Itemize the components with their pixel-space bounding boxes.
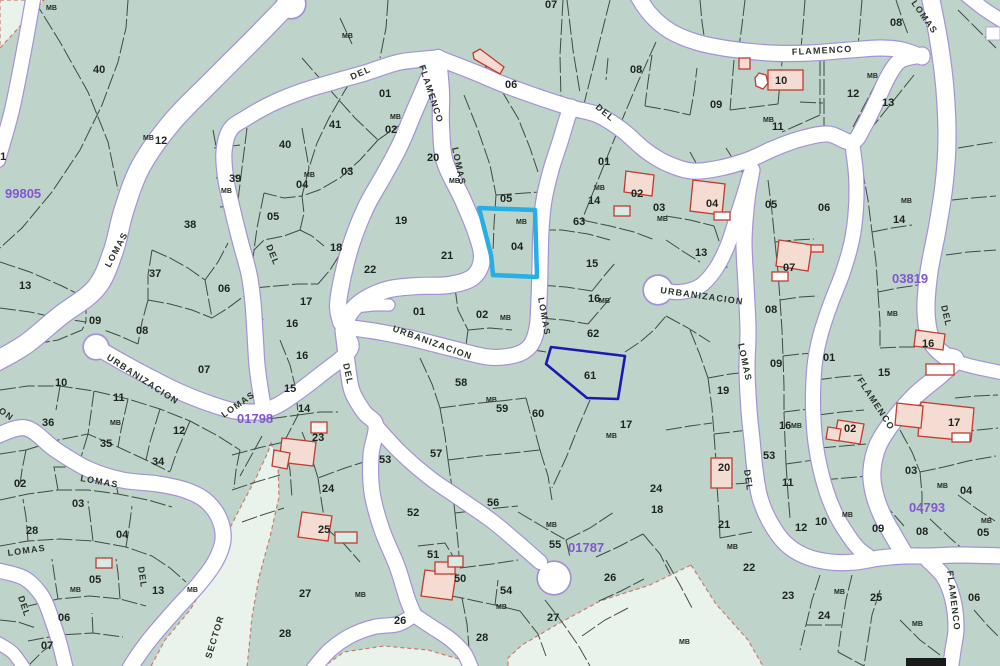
- svg-text:27: 27: [547, 612, 559, 624]
- svg-text:06: 06: [218, 283, 230, 295]
- svg-text:13: 13: [695, 247, 707, 259]
- svg-text:MB: MB: [867, 73, 878, 80]
- svg-text:22: 22: [364, 264, 376, 276]
- svg-text:04: 04: [116, 529, 129, 541]
- svg-text:MB: MB: [606, 433, 617, 440]
- svg-text:40: 40: [93, 64, 105, 76]
- svg-text:19: 19: [395, 215, 407, 227]
- svg-text:MB: MB: [516, 219, 527, 226]
- svg-text:41: 41: [329, 119, 341, 131]
- svg-text:05: 05: [89, 574, 101, 586]
- svg-text:21: 21: [441, 250, 453, 262]
- svg-text:35: 35: [100, 438, 112, 450]
- svg-text:28: 28: [26, 525, 38, 537]
- svg-text:16: 16: [286, 318, 298, 330]
- svg-text:01787: 01787: [568, 540, 604, 555]
- svg-text:51: 51: [427, 549, 439, 561]
- svg-text:08: 08: [890, 17, 902, 29]
- svg-text:03: 03: [653, 202, 665, 214]
- svg-text:36: 36: [42, 417, 54, 429]
- svg-text:12: 12: [155, 135, 167, 147]
- svg-text:MB: MB: [500, 315, 511, 322]
- svg-text:MB: MB: [763, 117, 774, 124]
- svg-text:40: 40: [279, 139, 291, 151]
- svg-text:10: 10: [775, 75, 787, 87]
- svg-text:16: 16: [922, 338, 934, 350]
- svg-text:10: 10: [55, 377, 67, 389]
- svg-text:12: 12: [173, 425, 185, 437]
- svg-text:08: 08: [765, 304, 777, 316]
- svg-text:02: 02: [476, 309, 488, 321]
- svg-text:12: 12: [795, 522, 807, 534]
- svg-text:MB: MB: [981, 518, 992, 525]
- svg-text:19: 19: [717, 385, 729, 397]
- svg-text:14: 14: [298, 403, 311, 415]
- svg-text:09: 09: [770, 358, 782, 370]
- svg-text:08: 08: [630, 64, 642, 76]
- svg-text:MB: MB: [727, 544, 738, 551]
- svg-text:17: 17: [300, 296, 312, 308]
- svg-text:04: 04: [706, 198, 719, 210]
- svg-text:59: 59: [496, 403, 508, 415]
- svg-text:12: 12: [847, 88, 859, 100]
- svg-text:38: 38: [184, 219, 196, 231]
- svg-text:MB: MB: [70, 587, 81, 594]
- svg-text:03: 03: [905, 465, 917, 477]
- svg-text:99805: 99805: [5, 186, 41, 201]
- svg-text:20: 20: [427, 152, 439, 164]
- svg-text:MB: MB: [110, 420, 121, 427]
- svg-text:02: 02: [385, 124, 397, 136]
- svg-text:05: 05: [267, 211, 279, 223]
- svg-text:09: 09: [710, 99, 722, 111]
- svg-text:15: 15: [284, 383, 296, 395]
- svg-text:MB: MB: [143, 135, 154, 142]
- svg-text:54: 54: [500, 585, 513, 597]
- svg-text:02: 02: [631, 188, 643, 200]
- svg-text:MB: MB: [901, 198, 912, 205]
- svg-text:24: 24: [650, 483, 663, 495]
- svg-text:05: 05: [500, 193, 512, 205]
- svg-text:56: 56: [487, 497, 499, 509]
- svg-text:63: 63: [573, 216, 585, 228]
- svg-text:MB: MB: [657, 216, 668, 223]
- svg-text:11: 11: [113, 392, 125, 404]
- svg-text:MB: MB: [221, 188, 232, 195]
- svg-text:09: 09: [872, 523, 884, 535]
- svg-text:39: 39: [229, 173, 241, 185]
- svg-text:28: 28: [279, 628, 291, 640]
- svg-text:04: 04: [511, 241, 524, 253]
- svg-text:MB: MB: [486, 397, 497, 404]
- svg-text:07: 07: [41, 640, 53, 652]
- svg-text:01: 01: [598, 156, 610, 168]
- svg-text:MB: MB: [679, 639, 690, 646]
- svg-text:61: 61: [584, 370, 596, 382]
- svg-text:01: 01: [413, 306, 425, 318]
- svg-text:MB: MB: [304, 172, 315, 179]
- svg-text:09: 09: [89, 315, 101, 327]
- svg-text:MB: MB: [791, 423, 802, 430]
- svg-text:24: 24: [818, 610, 831, 622]
- svg-text:26: 26: [604, 572, 616, 584]
- svg-text:01: 01: [823, 352, 835, 364]
- svg-text:02: 02: [844, 423, 856, 435]
- svg-text:06: 06: [968, 592, 980, 604]
- svg-text:60: 60: [532, 408, 544, 420]
- svg-text:53: 53: [763, 450, 775, 462]
- svg-text:07: 07: [783, 262, 795, 274]
- svg-text:04: 04: [296, 179, 309, 191]
- svg-text:03819: 03819: [892, 271, 928, 286]
- svg-text:23: 23: [312, 432, 324, 444]
- svg-text:17: 17: [948, 417, 960, 429]
- svg-text:18: 18: [330, 242, 342, 254]
- svg-text:02: 02: [14, 478, 26, 490]
- svg-text:04: 04: [960, 485, 973, 497]
- svg-text:06: 06: [58, 612, 70, 624]
- svg-text:08: 08: [136, 325, 148, 337]
- svg-text:23: 23: [782, 590, 794, 602]
- svg-text:62: 62: [587, 328, 599, 340]
- svg-text:MB: MB: [937, 483, 948, 490]
- svg-text:06: 06: [818, 202, 830, 214]
- svg-text:MB: MB: [342, 33, 353, 40]
- svg-text:21: 21: [718, 519, 730, 531]
- svg-text:13: 13: [19, 280, 31, 292]
- svg-text:37: 37: [149, 268, 161, 280]
- svg-text:16: 16: [296, 350, 308, 362]
- svg-text:53: 53: [379, 454, 391, 466]
- svg-text:07: 07: [198, 364, 210, 376]
- svg-text:25: 25: [870, 592, 882, 604]
- svg-text:05: 05: [765, 199, 777, 211]
- svg-text:MB: MB: [355, 592, 366, 599]
- svg-text:MB: MB: [842, 512, 853, 519]
- svg-text:15: 15: [586, 258, 598, 270]
- svg-text:MB: MB: [187, 587, 198, 594]
- svg-text:15: 15: [878, 367, 890, 379]
- svg-text:18: 18: [651, 504, 663, 516]
- svg-text:MB: MB: [887, 311, 898, 318]
- svg-text:MB: MB: [546, 522, 557, 529]
- svg-text:MB: MB: [594, 185, 605, 192]
- svg-text:03: 03: [72, 498, 84, 510]
- svg-text:10: 10: [815, 516, 827, 528]
- svg-text:01: 01: [0, 151, 6, 163]
- svg-text:13: 13: [882, 97, 894, 109]
- svg-text:34: 34: [152, 456, 165, 468]
- svg-text:03: 03: [341, 166, 353, 178]
- svg-text:24: 24: [322, 483, 335, 495]
- svg-text:58: 58: [455, 377, 467, 389]
- svg-text:04793: 04793: [909, 500, 945, 515]
- svg-text:MB: MB: [390, 114, 401, 121]
- svg-text:08: 08: [916, 526, 928, 538]
- svg-text:07: 07: [545, 0, 557, 11]
- svg-text:13: 13: [152, 585, 164, 597]
- svg-text:01798: 01798: [237, 411, 273, 426]
- svg-text:MB: MB: [912, 621, 923, 628]
- svg-text:MB: MB: [496, 604, 507, 611]
- svg-text:27: 27: [299, 588, 311, 600]
- svg-text:57: 57: [430, 448, 442, 460]
- svg-text:14: 14: [588, 195, 601, 207]
- svg-text:22: 22: [743, 562, 755, 574]
- svg-text:52: 52: [407, 507, 419, 519]
- svg-text:28: 28: [476, 632, 488, 644]
- svg-text:16: 16: [779, 420, 791, 432]
- svg-text:20: 20: [718, 462, 730, 474]
- svg-text:17: 17: [620, 419, 632, 431]
- svg-text:06: 06: [505, 79, 517, 91]
- svg-text:55: 55: [549, 539, 561, 551]
- svg-text:11: 11: [782, 477, 794, 489]
- svg-text:01: 01: [379, 88, 391, 100]
- svg-text:50: 50: [454, 573, 466, 585]
- svg-text:MB: MB: [46, 5, 57, 12]
- svg-text:MB: MB: [599, 298, 610, 305]
- svg-text:MB: MB: [834, 589, 845, 596]
- svg-text:05: 05: [977, 527, 989, 539]
- svg-text:26: 26: [394, 615, 406, 627]
- svg-text:14: 14: [893, 214, 906, 226]
- svg-text:25: 25: [318, 524, 330, 536]
